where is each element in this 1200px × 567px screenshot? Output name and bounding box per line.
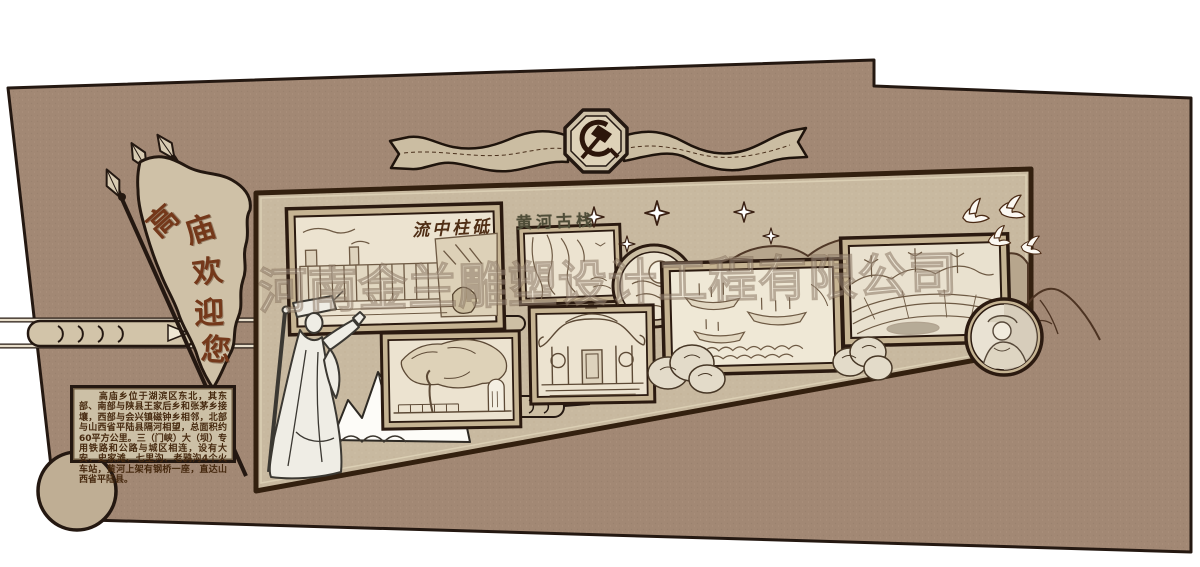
picture-plank-road-title: 黄河古栈 [516, 207, 597, 234]
party-emblem-icon [565, 110, 627, 172]
pennant-char: 您 [200, 324, 233, 370]
picture-plank-road [518, 224, 623, 305]
portrait-medallion [966, 299, 1042, 375]
picture-temple [529, 303, 655, 404]
intro-text: 高庙乡位于湖滨区东北，其东部、南部与陕县王家后乡和张茅乡接壤，西部与会兴镇磁钟乡… [79, 392, 227, 486]
picture-dam-title: 流中柱砥 [411, 212, 492, 241]
intro-panel: 高庙乡位于湖滨区东北，其东部、南部与陕县王家后乡和张茅乡接壤，西部与会兴镇磁钟乡… [70, 385, 236, 463]
picture-ancient-tree [381, 331, 521, 429]
pennant-char: 欢 [189, 245, 225, 293]
cultural-wall-design: 高 庙 欢 迎 您 流中柱砥 黄河古栈 高庙乡位于湖滨区东北，其东部、南部与陕县… [0, 0, 1200, 567]
